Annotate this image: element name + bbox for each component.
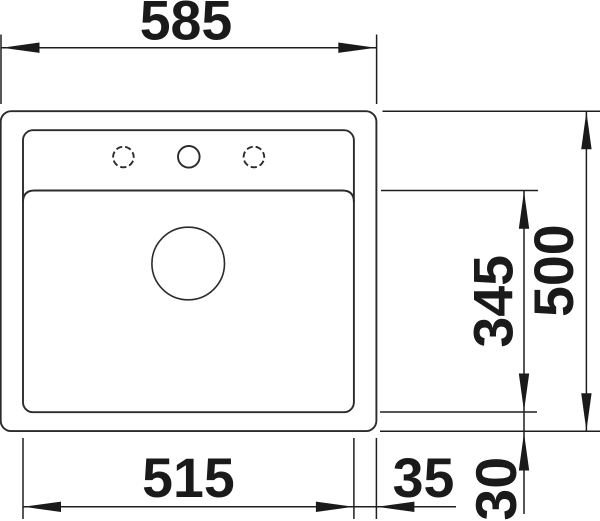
svg-text:30: 30: [465, 457, 529, 521]
svg-text:515: 515: [142, 447, 235, 509]
svg-text:585: 585: [140, 0, 233, 51]
svg-text:345: 345: [462, 255, 524, 348]
svg-text:35: 35: [393, 447, 455, 509]
svg-text:500: 500: [523, 224, 585, 317]
